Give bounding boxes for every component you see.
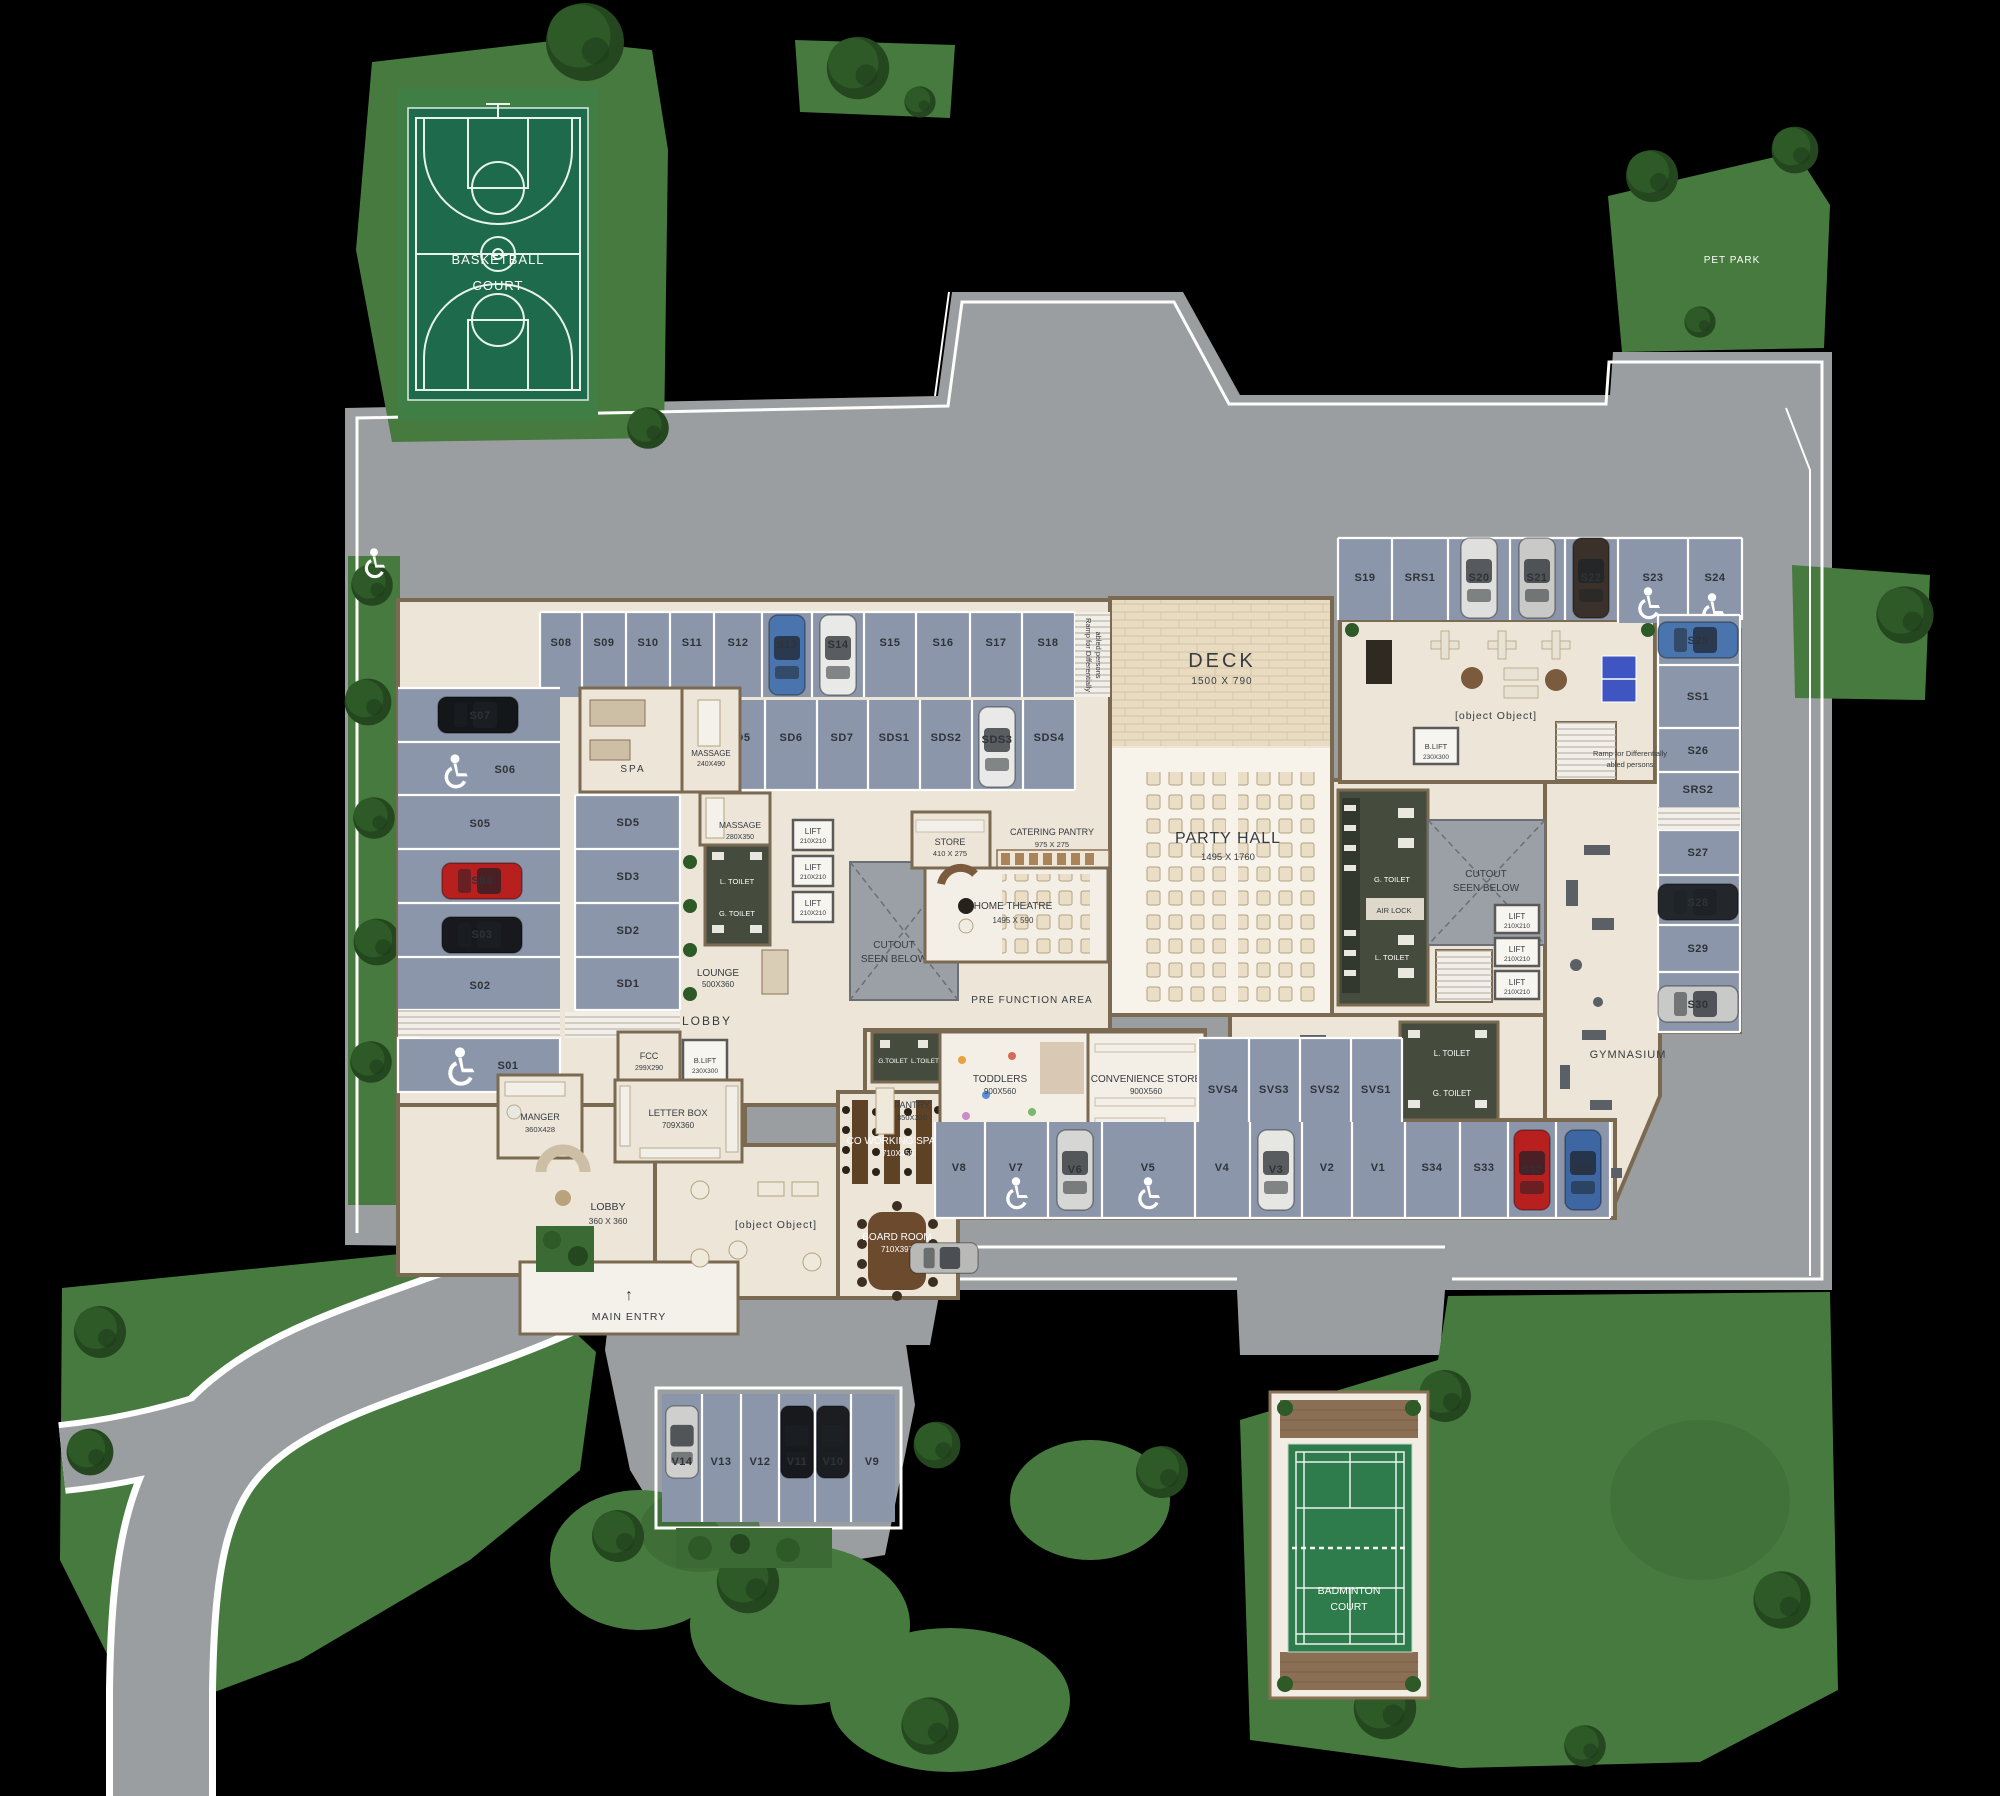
lift-label: LIFT bbox=[1509, 945, 1526, 954]
stall-label: V6 bbox=[1068, 1164, 1082, 1176]
lift-dims: 210X210 bbox=[800, 874, 826, 881]
stall-label: S13 bbox=[776, 639, 797, 651]
b-lift-label: B.LIFT bbox=[1425, 742, 1448, 751]
stall-label: SD5 bbox=[617, 817, 640, 829]
deck: DECK 1500 X 790 bbox=[1112, 600, 1330, 746]
stall-label: S19 bbox=[1354, 572, 1375, 584]
stall-label: S04 bbox=[471, 875, 492, 887]
lounge-seating-label: [object Object] bbox=[735, 1219, 817, 1231]
lift-dims: 210X210 bbox=[800, 910, 826, 917]
stall-label: S28 bbox=[1687, 897, 1708, 909]
cutout-label-2: SEEN BELOW bbox=[861, 954, 928, 965]
b-lift-label: B.LIFT bbox=[694, 1056, 717, 1065]
stall-label: S06 bbox=[494, 764, 515, 776]
massage-label: MASSAGE bbox=[691, 749, 731, 758]
stall-label: S07 bbox=[469, 710, 490, 722]
lobby-main-label: LOBBY bbox=[590, 1201, 625, 1213]
lift-label: LIFT bbox=[1509, 978, 1526, 987]
stall-label: S23 bbox=[1642, 572, 1663, 584]
manger-label: MANGER bbox=[520, 1112, 560, 1122]
stall-label: V13 bbox=[710, 1456, 731, 1468]
stall-label: S22 bbox=[1580, 572, 1601, 584]
stall-label: V9 bbox=[865, 1456, 879, 1468]
stall-label: S26 bbox=[1687, 745, 1708, 757]
stall-label: S24 bbox=[1704, 572, 1725, 584]
lounge-dims: 500X360 bbox=[702, 980, 735, 989]
deck-label: DECK bbox=[1188, 650, 1256, 672]
g-toilet-label: G. TOILET bbox=[1433, 1089, 1471, 1098]
toddlers-label: TODDLERS bbox=[973, 1074, 1028, 1085]
cutout-label-2: SEEN BELOW bbox=[1453, 883, 1520, 894]
stairs bbox=[1436, 950, 1492, 1002]
stall-label: SRS1 bbox=[1405, 572, 1436, 584]
l-toilet-small-label: L.TOILET bbox=[911, 1058, 939, 1065]
stall-label: S11 bbox=[682, 637, 702, 649]
retail-block: G.TOILET L.TOILET PANTRY 350X320 TODDLER… bbox=[872, 1032, 1205, 1135]
stall-label: S08 bbox=[550, 637, 571, 649]
stall-label: S01 bbox=[497, 1060, 518, 1072]
stall-label: SD3 bbox=[617, 871, 640, 883]
catering-pantry-label: CATERING PANTRY bbox=[1010, 827, 1094, 837]
stall-label: V4 bbox=[1215, 1162, 1230, 1174]
stall-label: SS1 bbox=[1687, 691, 1709, 703]
ramp-label-line1: Ramp for Differentially bbox=[1084, 618, 1093, 692]
stall-label: SVS2 bbox=[1310, 1084, 1340, 1096]
home-theatre-dims: 1495 X 590 bbox=[993, 916, 1034, 925]
cutout-label-1: CUTOUT bbox=[1465, 869, 1506, 880]
parking-row-bottom: V8 V7 V6 V5 V4 V3 V2 V1 S34 S33 S32 S31 bbox=[935, 1122, 1610, 1218]
gym-toilets: L. TOILET G. TOILET bbox=[1400, 1022, 1498, 1120]
stall-label: SVS3 bbox=[1259, 1084, 1289, 1096]
store-label: STORE bbox=[935, 837, 966, 847]
stall-label: V2 bbox=[1320, 1162, 1334, 1174]
convenience-store-dims: 900X560 bbox=[1130, 1087, 1163, 1096]
stall-label: S03 bbox=[471, 929, 492, 941]
letter-box-dims: 709X360 bbox=[662, 1121, 695, 1130]
lift-dims: 210X210 bbox=[1504, 989, 1530, 996]
lift-dims: 210X210 bbox=[1504, 956, 1530, 963]
deck-dims: 1500 X 790 bbox=[1191, 676, 1252, 687]
massage-dims: 240X490 bbox=[697, 761, 725, 768]
stall-label: S17 bbox=[985, 637, 1006, 649]
catering-pantry-dims: 975 X 275 bbox=[1035, 840, 1069, 849]
pantry-dims: 350X320 bbox=[897, 1113, 927, 1122]
stall-label: SD7 bbox=[831, 732, 854, 744]
stall-label: SRS2 bbox=[1683, 784, 1714, 796]
lift-label: LIFT bbox=[805, 863, 822, 872]
right-core: G. TOILET AIR LOCK L. TOILET CUTOUT SEEN… bbox=[1338, 790, 1545, 1005]
lift-label: LIFT bbox=[805, 827, 822, 836]
stall-label: S31 bbox=[1572, 1164, 1593, 1176]
main-entry-arrow-icon: ↑ bbox=[625, 1287, 633, 1304]
stall-label: V1 bbox=[1371, 1162, 1385, 1174]
l-toilet-label: L. TOILET bbox=[1375, 953, 1410, 962]
stall-label: SDS4 bbox=[1034, 732, 1065, 744]
stall-label: S09 bbox=[593, 637, 614, 649]
ramp-label-line2: abled persons bbox=[1606, 760, 1653, 769]
car-on-road bbox=[910, 1243, 978, 1274]
board-room-dims: 710X397 bbox=[881, 1245, 914, 1254]
stall-label: SD6 bbox=[780, 732, 803, 744]
stall-label: V5 bbox=[1141, 1162, 1155, 1174]
fcc-dims: 299X290 bbox=[635, 1065, 663, 1072]
stall-label: S14 bbox=[827, 639, 848, 651]
badminton-court: BADMINTON COURT bbox=[1270, 1392, 1428, 1698]
stall-label: S12 bbox=[727, 637, 748, 649]
stall-label: S21 bbox=[1526, 572, 1547, 584]
lobby-main-dims: 360 X 360 bbox=[589, 1216, 628, 1226]
pre-function-label: PRE FUNCTION AREA bbox=[971, 995, 1092, 1006]
letter-box-label: LETTER BOX bbox=[648, 1108, 708, 1119]
stall-label: S32 bbox=[1521, 1164, 1542, 1176]
stall-label: S15 bbox=[879, 637, 900, 649]
stall-label: V14 bbox=[671, 1456, 692, 1468]
ramp-label-line1: Ramp for Differentially bbox=[1593, 749, 1667, 758]
air-lock-label: AIR LOCK bbox=[1376, 906, 1411, 915]
stall-label: S33 bbox=[1473, 1162, 1494, 1174]
g-toilet-label: G. TOILET bbox=[719, 909, 755, 918]
home-theatre-label: HOME THEATRE bbox=[974, 901, 1053, 912]
stall-label: SDS1 bbox=[879, 732, 910, 744]
parking-row-mid: SD5 SD6 SD7 SDS1 SDS2 SDS3 SDS4 bbox=[713, 700, 1075, 790]
stall-label: V10 bbox=[822, 1456, 843, 1468]
party-hall-dims: 1495 X 1760 bbox=[1201, 852, 1255, 863]
fcc-label: FCC bbox=[640, 1051, 659, 1061]
stairs bbox=[420, 1012, 560, 1038]
car-sds3 bbox=[979, 707, 1015, 787]
stall-label: S34 bbox=[1421, 1162, 1442, 1174]
massage-dims: 280X350 bbox=[726, 834, 754, 841]
b-lift-dims: 230X300 bbox=[692, 1068, 718, 1075]
stall-label: SVS1 bbox=[1361, 1084, 1391, 1096]
parking-row-top: S08 S09 S10 S11 S12 S13 S14 S15 S16 S17 … bbox=[540, 612, 1110, 697]
stall-label: SD2 bbox=[617, 925, 640, 937]
stall-label: S16 bbox=[932, 637, 953, 649]
pantry-label: PANTRY bbox=[894, 1100, 930, 1110]
stall-label: S10 bbox=[637, 637, 658, 649]
toddlers-dims: 900X560 bbox=[984, 1087, 1017, 1096]
stall-label: S25 bbox=[1687, 635, 1708, 647]
basketball-court-label-1: BASKETBALL bbox=[451, 252, 544, 267]
badminton-court-label-2: COURT bbox=[1330, 1601, 1368, 1613]
stall-label: SDS3 bbox=[982, 734, 1013, 746]
g-toilet-small-label: G.TOILET bbox=[878, 1058, 908, 1065]
car-s13 bbox=[769, 615, 805, 695]
stall-label: S20 bbox=[1468, 572, 1489, 584]
stall-label: SVS4 bbox=[1208, 1084, 1239, 1096]
stall-label: S29 bbox=[1687, 943, 1708, 955]
gymnasium-label: GYMNASIUM bbox=[1590, 1049, 1667, 1061]
stall-label: S18 bbox=[1037, 637, 1058, 649]
stall-label: V11 bbox=[787, 1456, 807, 1468]
stall-label: S05 bbox=[469, 818, 490, 830]
stall-label: V7 bbox=[1009, 1162, 1023, 1174]
basketball-court: BASKETBALL COURT bbox=[398, 88, 598, 420]
basketball-court-label-2: COURT bbox=[473, 278, 524, 293]
stall-label: S02 bbox=[469, 980, 490, 992]
party-hall-label: PARTY HALL bbox=[1175, 830, 1281, 847]
lounge-label: LOUNGE bbox=[697, 968, 740, 979]
badminton-court-label-1: BADMINTON bbox=[1318, 1585, 1381, 1597]
g-toilet-label: G. TOILET bbox=[1374, 875, 1410, 884]
recreational-space-label: [object Object] bbox=[1455, 710, 1537, 722]
lift-label: LIFT bbox=[805, 899, 822, 908]
stall-label: S30 bbox=[1687, 999, 1708, 1011]
site-plan: BASKETBALL COURT PET PARK DECK 1500 X 79… bbox=[0, 0, 2000, 1796]
stall-label: SDS2 bbox=[931, 732, 962, 744]
parking-col-right: S25 SS1 S26 SRS2 S27 S28 S29 S30 bbox=[1658, 615, 1740, 1032]
stall-label: V12 bbox=[749, 1456, 770, 1468]
lift-dims: 210X210 bbox=[1504, 923, 1530, 930]
stall-label: V8 bbox=[952, 1162, 966, 1174]
stall-label: S27 bbox=[1687, 847, 1708, 859]
parking-row-svs: SVS4 SVS3 SVS2 SVS1 bbox=[1198, 1038, 1402, 1122]
convenience-store-label: CONVENIENCE STORE bbox=[1091, 1074, 1202, 1085]
stall-label: SD1 bbox=[617, 978, 640, 990]
manger-dims: 360X428 bbox=[525, 1125, 555, 1134]
lobby-upper-label: LOBBY bbox=[682, 1014, 732, 1028]
party-hall: PARTY HALL 1495 X 1760 bbox=[1112, 748, 1330, 1013]
lift-dims: 210X210 bbox=[800, 838, 826, 845]
site-plan-canvas: BASKETBALL COURT PET PARK DECK 1500 X 79… bbox=[0, 0, 2000, 1796]
spa-label: SPA bbox=[620, 764, 645, 775]
store-dims: 410 X 275 bbox=[933, 849, 967, 858]
co-working-dims: 710X455 bbox=[882, 1149, 915, 1158]
ramp-label-line2: abled persons bbox=[1094, 631, 1103, 678]
pet-park-label: PET PARK bbox=[1704, 255, 1761, 266]
l-toilet-label: L. TOILET bbox=[1434, 1049, 1471, 1058]
massage-label: MASSAGE bbox=[719, 820, 761, 830]
b-lift-dims: 230X300 bbox=[1423, 754, 1449, 761]
cutout-label-1: CUTOUT bbox=[873, 940, 914, 951]
board-room-label: BOARD ROOM bbox=[862, 1232, 931, 1243]
stall-label: V3 bbox=[1269, 1164, 1283, 1176]
car-s14 bbox=[820, 615, 856, 695]
main-entry-label: MAIN ENTRY bbox=[592, 1311, 667, 1323]
l-toilet-label: L. TOILET bbox=[720, 877, 755, 886]
lift-label: LIFT bbox=[1509, 912, 1526, 921]
table-tennis-table bbox=[1602, 656, 1636, 702]
